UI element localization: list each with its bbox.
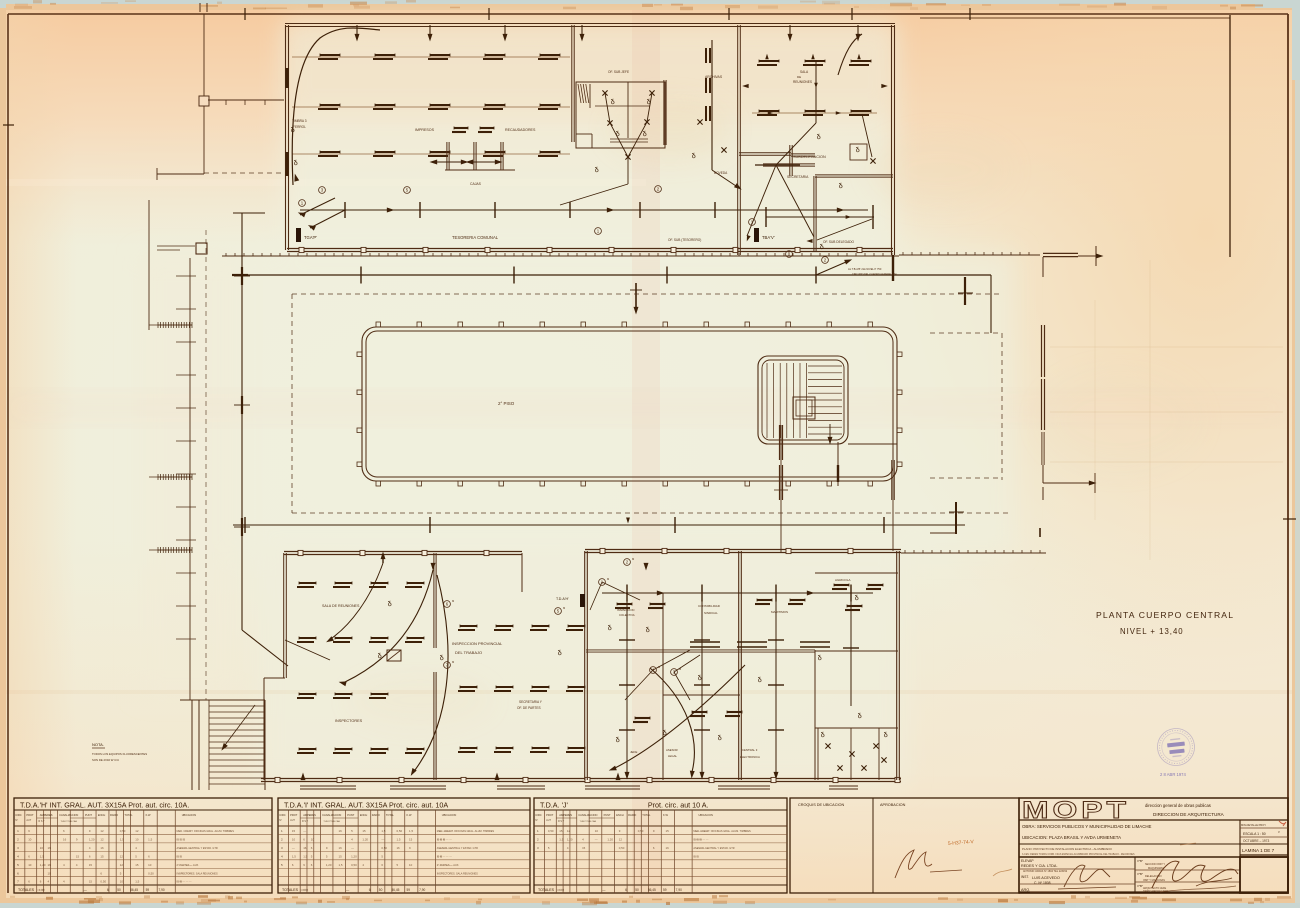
svg-text:2º PARTES — AUX.: 2º PARTES — AUX. [437, 863, 460, 867]
svg-text:AUT: AUT [26, 819, 31, 822]
svg-text:MARITIMOS: MARITIMOS [771, 610, 788, 614]
svg-text:C. Nº 1808: C. Nº 1808 [1034, 881, 1051, 885]
svg-text:SINDICAL: SINDICAL [704, 611, 718, 615]
svg-text:12: 12 [100, 837, 104, 841]
svg-text:1,20: 1,20 [351, 854, 357, 858]
svg-text:10: 10 [28, 837, 32, 841]
svg-text:PUNT: PUNT [85, 813, 92, 817]
svg-text:K.W: K.W [146, 813, 151, 817]
svg-text:MIN-DETALLE PROY: MIN-DETALLE PROY [1241, 823, 1266, 827]
svg-text:TGA'P': TGA'P' [304, 235, 317, 240]
svg-text:TOTAL: TOTAL [386, 813, 395, 817]
svg-text:AMPERES: AMPERES [40, 813, 53, 817]
svg-text:12: 12 [619, 837, 623, 841]
svg-text:INSPECCION: INSPECCION [617, 608, 634, 612]
svg-text:TUB P/TUB CAB: TUB P/TUB CAB [60, 820, 77, 823]
svg-text:RADIO: RADIO [628, 813, 636, 817]
svg-text:0,50: 0,50 [120, 829, 126, 833]
svg-text:59: 59 [146, 888, 150, 892]
svg-text:10: 10 [148, 863, 152, 867]
svg-text:16: 16 [338, 829, 342, 833]
svg-text:ENCH: ENCH [360, 813, 367, 817]
svg-text:12: 12 [120, 863, 124, 867]
svg-text:REDES Y CIA. LTDA.: REDES Y CIA. LTDA. [1021, 864, 1058, 868]
svg-text:10: 10 [409, 863, 413, 867]
svg-text:CAJAS: CAJAS [470, 182, 482, 186]
svg-text:ASESOR. CENTRAL Y ESTAD. GTR: ASESOR. CENTRAL Y ESTAD. GTR [437, 847, 478, 850]
svg-text:2° PISO: 2° PISO [498, 401, 515, 406]
svg-text:LUIS ACEVEDO: LUIS ACEVEDO [1032, 876, 1060, 880]
svg-text:CANALIZACION: CANALIZACION [59, 813, 78, 817]
svg-text:CANALIZACION: CANALIZACION [322, 813, 341, 817]
svg-text:MOPT: MOPT [1022, 797, 1130, 824]
svg-text:2 8 ABR 1974: 2 8 ABR 1974 [1160, 772, 1187, 777]
svg-text:MED. CREDIT. OFICINAS GRAL. AL: MED. CREDIT. OFICINAS GRAL. ALUM. TIMBRE… [177, 830, 235, 833]
svg-text:MED. CREDIT. OFICINAS GRAL. AL: MED. CREDIT. OFICINAS GRAL. ALUM. TIMBRE… [693, 830, 751, 833]
svg-text:1,5: 1,5 [40, 854, 44, 858]
svg-text:ENCH: ENCH [616, 813, 623, 817]
svg-text:IB IB IB: IB IB IB [693, 838, 702, 841]
svg-text:UBICACION: PLAZA BRA: UBICACION: PLAZA BRASIL Y AVDA URMENETA [1022, 835, 1121, 840]
svg-text:FERROL: FERROL [293, 125, 306, 129]
svg-text:SALA DE REUNIONES: SALA DE REUNIONES [322, 604, 360, 608]
svg-text:INSPECTORES. SALA REUNIONES: INSPECTORES. SALA REUNIONES [437, 872, 478, 875]
svg-text:TOTAL: TOTAL [642, 813, 651, 817]
svg-text:1,5: 1,5 [148, 837, 152, 841]
svg-text:RECAUDADORES: RECAUDADORES [505, 128, 536, 132]
svg-text:PROT: PROT [26, 813, 34, 817]
svg-text:AUT: AUT [546, 819, 551, 822]
svg-text:16: 16 [48, 846, 52, 850]
svg-text:MAQUINARIA: MAQUINARIA [1148, 867, 1164, 870]
svg-text:OBRA: SERVICIOS PUBLICOS: OBRA: SERVICIOS PUBLICOS Y MUNICIPALIDAD… [1022, 824, 1152, 829]
svg-text:15: 15 [76, 854, 80, 858]
svg-text:15: 15 [89, 863, 93, 867]
svg-text:15: 15 [409, 837, 413, 841]
svg-text:INSPECTORES: INSPECTORES [335, 719, 363, 723]
svg-text:12: 12 [120, 854, 124, 858]
svg-text:15: 15 [582, 846, 586, 850]
svg-text:16: 16 [396, 846, 400, 850]
svg-text:R S T: R S T [39, 820, 46, 823]
svg-text:16: 16 [48, 863, 52, 867]
svg-text:CONTABILIDAD: CONTABILIDAD [698, 604, 721, 608]
svg-text:SECRETARIA Y: SECRETARIA Y [519, 700, 543, 704]
svg-text:M: M [658, 665, 660, 669]
svg-text:15: 15 [559, 829, 563, 833]
svg-text:V: V [1278, 830, 1280, 834]
svg-text:TOTALES: TOTALES [282, 888, 299, 892]
svg-text:IB IB: IB IB [693, 855, 699, 858]
svg-text:1,5: 1,5 [303, 854, 307, 858]
svg-text:SUBDELEGACION: SUBDELEGACION [793, 155, 826, 159]
svg-text:50: 50 [379, 888, 383, 892]
svg-text:TOTALES: TOTALES [18, 888, 35, 892]
svg-text:86,45: 86,45 [391, 888, 399, 892]
svg-text:—: — [351, 846, 354, 850]
svg-text:CIRCUITO DEL CUADRO GENERAL: CIRCUITO DEL CUADRO GENERAL 154 [852, 273, 897, 276]
svg-text:CIRC: CIRC [15, 813, 21, 817]
svg-text:OCTUBRE – 1973: OCTUBRE – 1973 [1243, 839, 1269, 843]
svg-text:UBICACION: UBICACION [698, 813, 713, 817]
svg-text:TUB P/TUB CAB: TUB P/TUB CAB [580, 820, 597, 823]
svg-text:V°B°: V°B° [1137, 872, 1143, 876]
svg-text:86,45: 86,45 [130, 888, 138, 892]
svg-text:Nº: Nº [535, 818, 538, 822]
svg-text:INST.: INST. [1021, 875, 1029, 879]
svg-text:OF. SUB DELEGADO: OF. SUB DELEGADO [823, 240, 855, 244]
svg-text:12: 12 [567, 829, 571, 833]
svg-text:NIVEL + 13,40: NIVEL + 13,40 [1120, 627, 1184, 636]
svg-text:10: 10 [135, 837, 139, 841]
svg-text:ANTONIO VARAS Nº 1804 TEL: ANTONIO VARAS Nº 1804 TEL 223152 [1023, 869, 1068, 873]
svg-text:1,20: 1,20 [567, 837, 573, 841]
svg-text:ASESOR: ASESOR [666, 748, 678, 752]
svg-text:1,20: 1,20 [362, 837, 368, 841]
svg-text:R S T: R S T [302, 820, 309, 823]
svg-text:1,20: 1,20 [40, 863, 46, 867]
svg-text:≈Σℓℓℓℓ: ≈Σℓℓℓℓ [301, 888, 308, 892]
svg-text:1,20: 1,20 [326, 863, 332, 867]
svg-text:1,20: 1,20 [607, 837, 613, 841]
svg-text:REUNIONES: REUNIONES [793, 80, 812, 84]
svg-text:—: — [381, 837, 384, 841]
svg-text:COLECTIVA: COLECTIVA [619, 613, 635, 617]
svg-text:7,90: 7,90 [419, 888, 425, 892]
svg-text:15: 15 [89, 880, 93, 884]
svg-text:86,45: 86,45 [648, 888, 656, 892]
svg-text:AMPERES: AMPERES [559, 813, 572, 817]
svg-text:6: 6 [625, 888, 627, 892]
svg-text:50: 50 [117, 888, 121, 892]
svg-text:M: M [679, 667, 681, 671]
svg-text:10: 10 [311, 837, 315, 841]
svg-text:10: 10 [292, 837, 296, 841]
svg-text:—: — [595, 837, 598, 841]
svg-text:PLANO: PROYECTO DE INSTALACION: PLANO: PROYECTO DE INSTALACION ELECTRICA… [1022, 847, 1113, 851]
svg-text:1,5: 1,5 [396, 837, 400, 841]
svg-text:DIRECCION DE ARQUITE: DIRECCION DE ARQUITECTURA [1153, 812, 1225, 817]
svg-text:M: M [563, 606, 565, 610]
svg-text:ARCHIVAS: ARCHIVAS [705, 75, 723, 79]
svg-text:15: 15 [362, 829, 366, 833]
svg-text:1,5: 1,5 [381, 829, 385, 833]
svg-text:T.D.A.'I' INT. GRAL. AUT.: T.D.A.'I' INT. GRAL. AUT. 3X15A Prot. ci… [284, 801, 448, 810]
svg-text:16: 16 [338, 846, 342, 850]
svg-text:1,5: 1,5 [292, 854, 296, 858]
svg-text:10: 10 [120, 880, 124, 884]
svg-text:T.D.A.'H' INT. GRAL. AUT.: T.D.A.'H' INT. GRAL. AUT. 3X15A Prot. au… [20, 801, 189, 810]
svg-text:TUB P/TUB CAB: TUB P/TUB CAB [323, 820, 340, 823]
svg-text:59: 59 [663, 888, 667, 892]
svg-text:12: 12 [135, 829, 139, 833]
svg-text:6: 6 [369, 888, 371, 892]
svg-text:15: 15 [666, 829, 670, 833]
svg-text:1,5: 1,5 [120, 837, 124, 841]
svg-text:Nº: Nº [279, 818, 282, 822]
svg-text:1,5: 1,5 [338, 863, 342, 867]
svg-text:OF. DE PARTES: OF. DE PARTES [517, 706, 541, 710]
svg-text:TOTALES: TOTALES [538, 888, 555, 892]
svg-text:ELECTRONICA: ELECTRONICA [740, 755, 760, 759]
svg-text:0,50: 0,50 [148, 871, 154, 875]
svg-text:TBA'V': TBA'V' [762, 235, 775, 240]
svg-text:2º PARTES — AUX.: 2º PARTES — AUX. [177, 863, 200, 867]
svg-text:PLANTA CUERPO CENTRAL: PLANTA CUERPO CENTRAL [1096, 610, 1234, 620]
svg-text:1,5: 1,5 [409, 829, 413, 833]
svg-text:direccion general de: direccion general de obras publicas [1145, 803, 1211, 808]
svg-text:1,5: 1,5 [135, 880, 139, 884]
svg-text:AL T.B.A'B' 2do NIVEL P 750: AL T.B.A'B' 2do NIVEL P 750 [848, 267, 882, 271]
svg-text:PUNT: PUNT [604, 813, 611, 817]
svg-text:0,50: 0,50 [396, 829, 402, 833]
svg-text:CENTRAL 3: CENTRAL 3 [742, 748, 758, 752]
svg-text:16: 16 [63, 837, 67, 841]
svg-text:NOTA.: NOTA. [92, 742, 104, 747]
svg-text:10: 10 [48, 871, 52, 875]
svg-text:AUT: AUT [290, 819, 295, 822]
svg-text:M: M [607, 577, 609, 581]
svg-text:SECRETARIA: SECRETARIA [787, 175, 809, 179]
svg-text:T.D.A'H': T.D.A'H' [556, 597, 569, 601]
svg-text:IB IB: IB IB [177, 881, 183, 884]
svg-text:SECCION INST Y: SECCION INST Y [1145, 863, 1165, 866]
svg-text:Nº: Nº [15, 818, 18, 822]
svg-text:ASESOR. CENTRAL Y ESTAD. GTR: ASESOR. CENTRAL Y ESTAD. GTR [177, 847, 218, 850]
svg-text:RADIO: RADIO [372, 813, 380, 817]
svg-text:ENCH: ENCH [98, 813, 105, 817]
svg-text:15: 15 [100, 854, 104, 858]
svg-text:UBICACION: UBICACION [442, 813, 457, 817]
svg-text:TODOS LOS EQUIPOS FLUORESCENTE: TODOS LOS EQUIPOS FLUORESCENTES [92, 752, 147, 756]
svg-text:M: M [452, 599, 454, 603]
svg-text:TESORERIA COMUNAL: TESORERIA COMUNAL [452, 235, 499, 240]
svg-text:ESCALA 1 : 50: ESCALA 1 : 50 [1243, 832, 1266, 836]
svg-text:TOTAL: TOTAL [124, 813, 133, 817]
svg-text:1,5: 1,5 [559, 837, 563, 841]
svg-text:M: M [632, 557, 634, 561]
svg-text:16: 16 [40, 846, 44, 850]
svg-text:—: — [292, 846, 295, 850]
svg-text:Prot. circ. aut 10 A.: Prot. circ. aut 10 A. [648, 801, 709, 810]
svg-text:M: M [452, 660, 454, 664]
svg-text:1,20: 1,20 [89, 837, 95, 841]
svg-text:LEGAL: LEGAL [668, 754, 677, 758]
svg-text:AMPERES: AMPERES [303, 813, 316, 817]
svg-text:50: 50 [635, 888, 639, 892]
svg-text:10: 10 [595, 829, 599, 833]
svg-text:16: 16 [303, 846, 307, 850]
svg-text:UBICACION: UBICACION [182, 813, 197, 817]
svg-text:CIRC: CIRC [535, 813, 541, 817]
svg-text:7,90: 7,90 [676, 888, 682, 892]
svg-text:7,90: 7,90 [158, 888, 164, 892]
svg-text:PUNT: PUNT [347, 813, 354, 817]
svg-text:≈Σℓℓℓℓ: ≈Σℓℓℓℓ [557, 888, 564, 892]
svg-text:0,50: 0,50 [381, 846, 387, 850]
svg-text:OF. SUB JEFE: OF. SUB JEFE [608, 70, 629, 74]
svg-text:10: 10 [28, 863, 32, 867]
svg-text:SON DE 2X40 W C/U: SON DE 2X40 W C/U [92, 758, 119, 762]
svg-text:K.W: K.W [407, 813, 412, 817]
svg-text:0,50: 0,50 [619, 846, 625, 850]
svg-text:PROT: PROT [546, 813, 554, 817]
svg-text:MED. CREDIT. OFICINAS GRAL. AL: MED. CREDIT. OFICINAS GRAL. ALUM. TIMBRE… [437, 830, 495, 833]
svg-text:59: 59 [407, 888, 411, 892]
svg-text:INST Y MAQUINAS: INST Y MAQUINAS [1143, 879, 1165, 882]
svg-text:INSPECTORES. SALA REUNIONES: INSPECTORES. SALA REUNIONES [177, 872, 218, 875]
svg-text:IB IB IB: IB IB IB [437, 838, 446, 841]
svg-text:3-CEN: REDES TOMAS CORR. FZAS: 3-CEN: REDES TOMAS CORR. FZAS ESPECIAL A… [1022, 853, 1135, 856]
svg-text:RADIO: RADIO [110, 813, 118, 817]
svg-text:AGRICOLA: AGRICOLA [835, 578, 851, 582]
svg-text:T.D.A. 'J': T.D.A. 'J' [540, 801, 569, 810]
svg-text:0,50: 0,50 [100, 880, 106, 884]
svg-text:16: 16 [100, 846, 104, 850]
svg-text:0,50: 0,50 [351, 863, 357, 867]
svg-text:K.W: K.W [663, 813, 668, 817]
svg-text:DE: DE [797, 75, 801, 79]
svg-text:IB IB: IB IB [437, 855, 443, 858]
svg-text:LAMINA 1 DE 7: LAMINA 1 DE 7 [1242, 848, 1275, 853]
svg-text:CIRC: CIRC [279, 813, 285, 817]
svg-text:BOVEDA: BOVEDA [714, 171, 728, 175]
svg-text:ASESOR. CENTRAL Y ESTAD. GTR: ASESOR. CENTRAL Y ESTAD. GTR [693, 847, 734, 850]
svg-text:IMPRESOS: IMPRESOS [415, 128, 435, 132]
svg-text:≈Σℓℓℓℓ: ≈Σℓℓℓℓ [37, 888, 44, 892]
svg-text:OF. SUB (TESORERO): OF. SUB (TESORERO) [668, 238, 701, 242]
svg-text:6: 6 [107, 888, 109, 892]
svg-text:PROT: PROT [290, 813, 298, 817]
svg-text:15: 15 [338, 854, 342, 858]
svg-text:15: 15 [135, 863, 139, 867]
svg-text:V°B°: V°B° [1137, 859, 1143, 863]
svg-text:R S T: R S T [558, 820, 565, 823]
svg-text:12: 12 [100, 829, 104, 833]
svg-text:DEL TRABAJO: DEL TRABAJO [455, 650, 482, 655]
svg-text:15: 15 [292, 829, 296, 833]
svg-text:0,50: 0,50 [638, 829, 644, 833]
svg-text:16: 16 [666, 846, 670, 850]
svg-text:IB IB IB: IB IB IB [177, 838, 186, 841]
svg-text:CANALIZACION: CANALIZACION [578, 813, 597, 817]
svg-text:—: — [303, 829, 306, 833]
svg-text:CROQUIS DE UBICACION: CROQUIS DE UBICACION [798, 803, 844, 807]
svg-text:INSPECCION PROVINCIAL: INSPECCION PROVINCIAL [452, 641, 503, 646]
svg-text:SALA: SALA [800, 70, 809, 74]
svg-text:IB IB: IB IB [177, 855, 183, 858]
svg-text:JEFE: JEFE [630, 750, 637, 754]
svg-text:APROBACION: APROBACION [880, 803, 906, 807]
svg-text:ELEVAP: ELEVAP [1021, 859, 1034, 863]
svg-text:ARQ.: ARQ. [1021, 888, 1030, 892]
svg-text:0,50: 0,50 [548, 829, 554, 833]
svg-text:TIMBRA 3: TIMBRA 3 [292, 119, 307, 123]
